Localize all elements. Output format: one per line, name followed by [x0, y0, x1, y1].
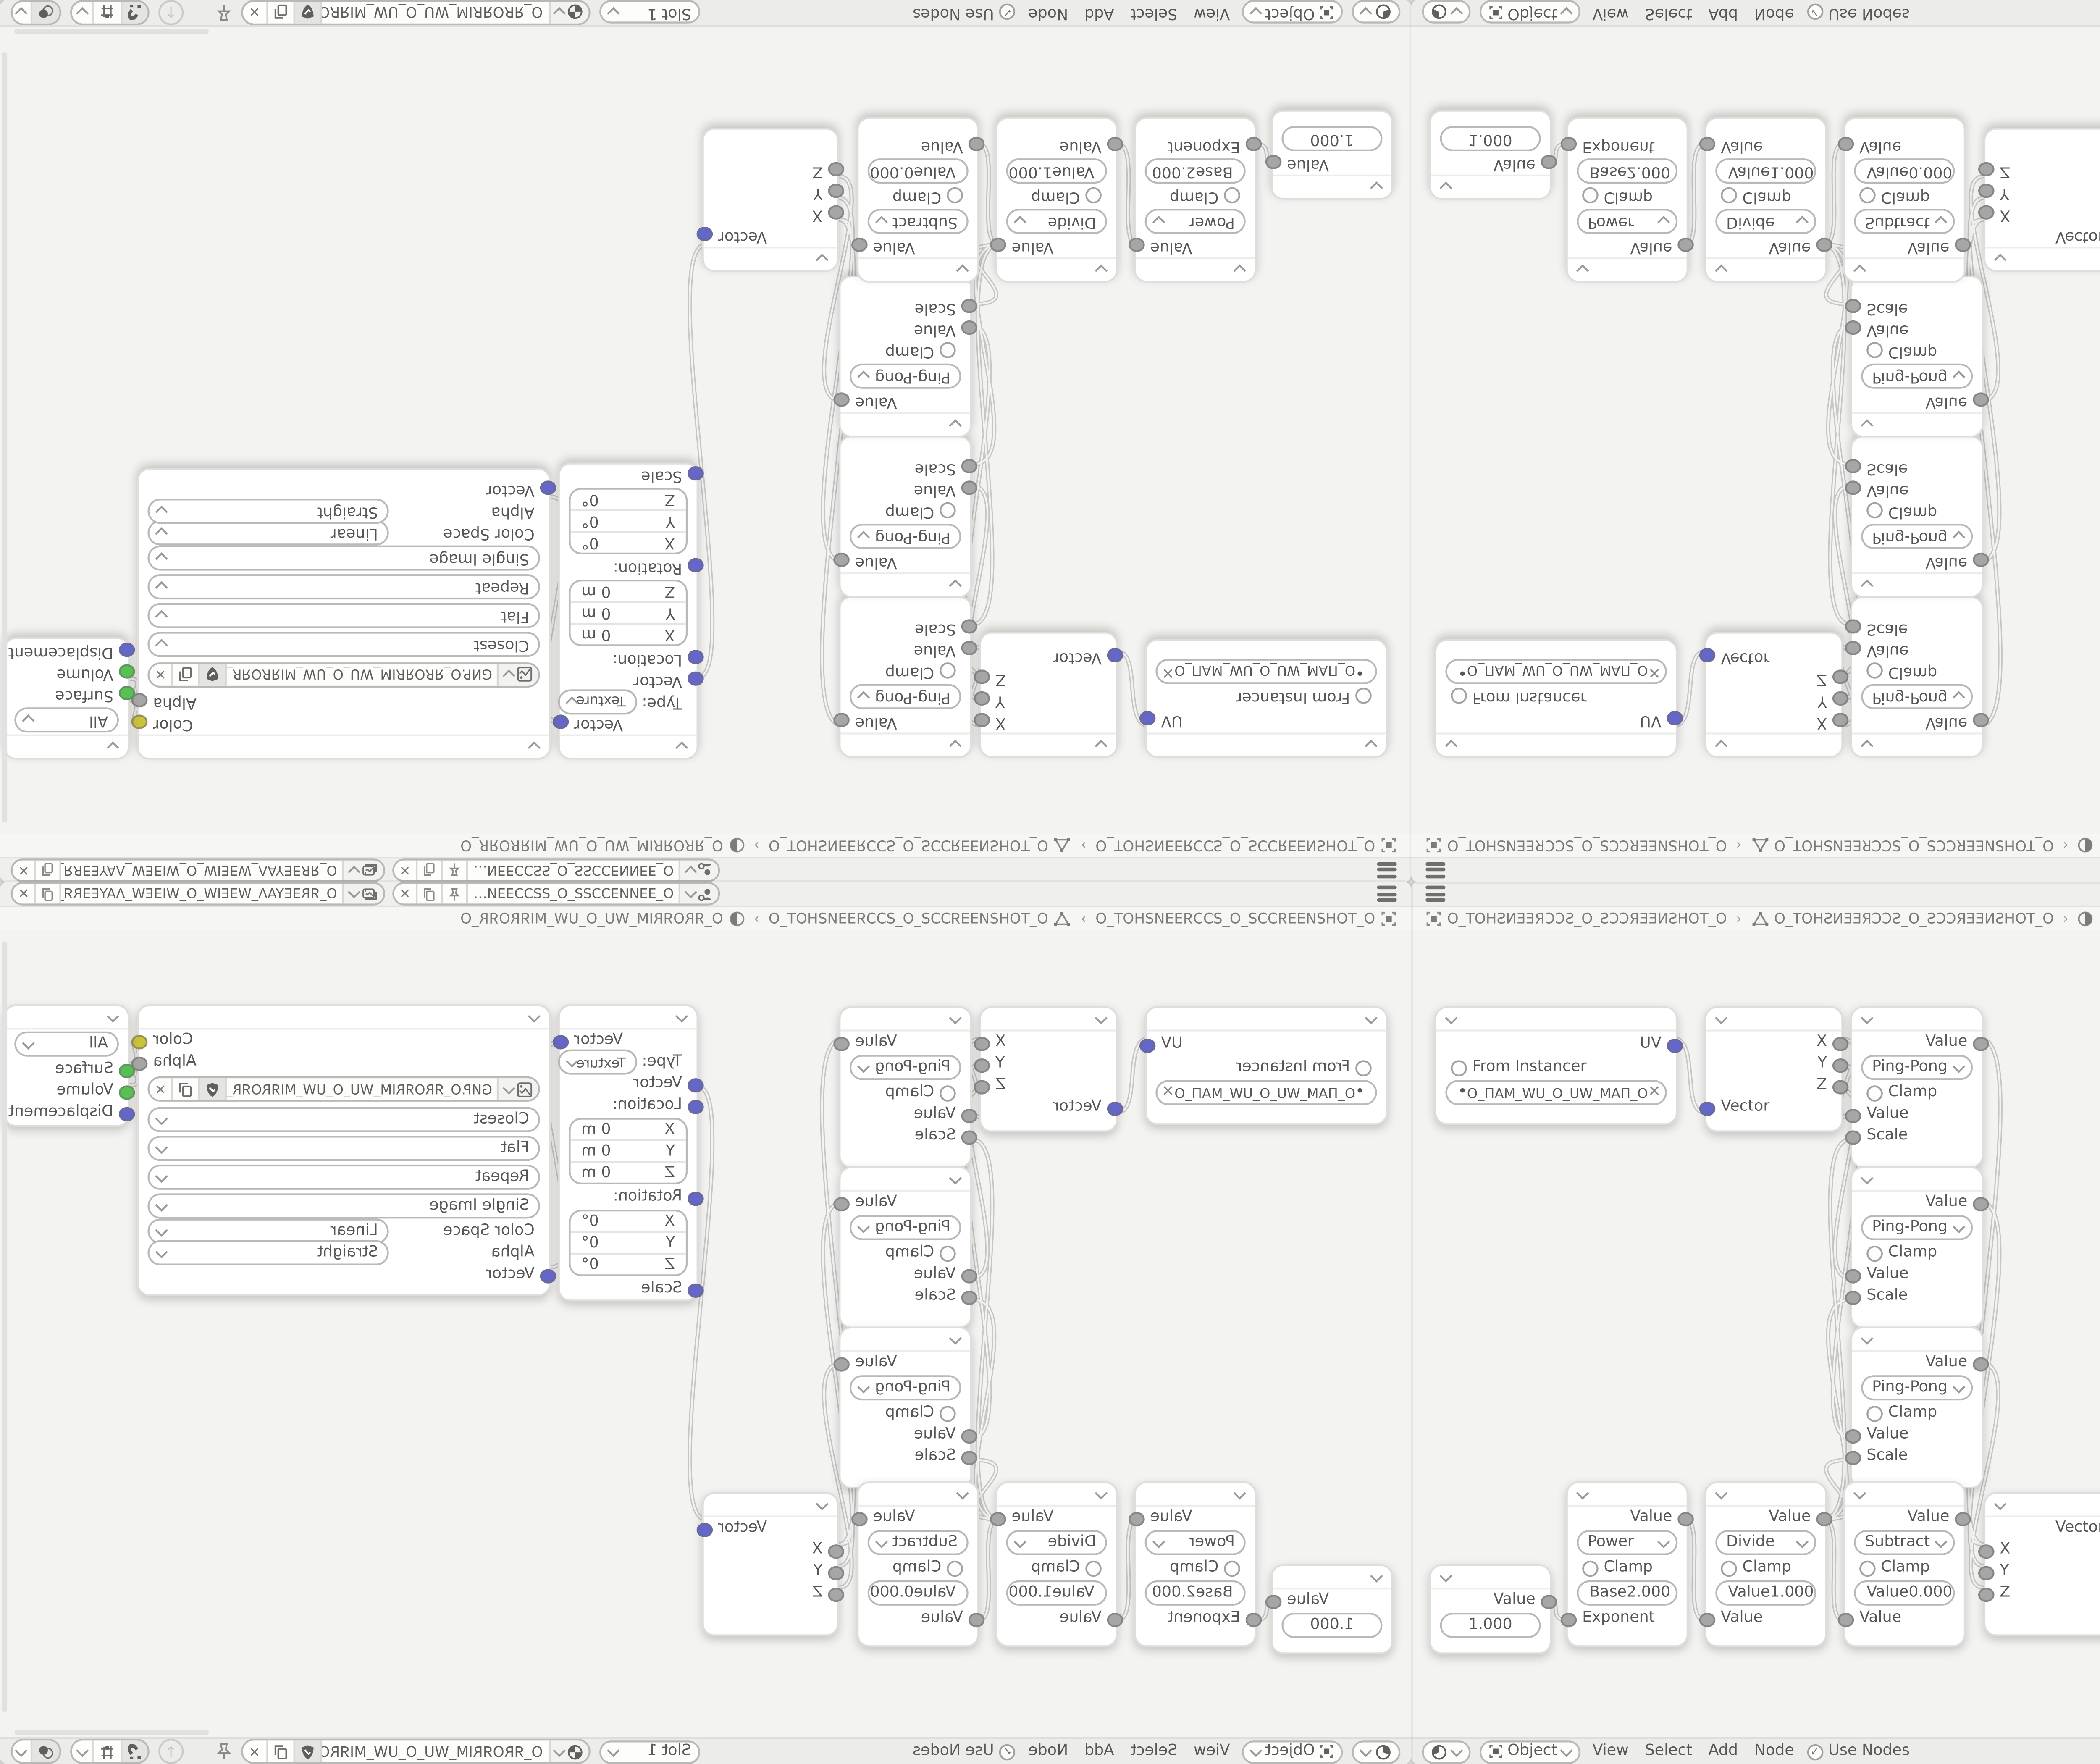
- node-uv-map[interactable]: UV From Instancer • O_ПAM_WU_O_UW_MAП_O …: [1435, 639, 1678, 758]
- node-collapse-button[interactable]: [1273, 1566, 1391, 1590]
- node-collapse-button[interactable]: [1431, 1566, 1550, 1590]
- node-collapse-button[interactable]: [1852, 1328, 1982, 1352]
- divide-value-field[interactable]: Value1.000: [1715, 1580, 1816, 1606]
- editor-type-dropdown[interactable]: [1353, 1740, 1401, 1763]
- overlap-circles-icon[interactable]: [31, 2, 60, 23]
- pin-icon[interactable]: [441, 861, 466, 880]
- copy-icon[interactable]: [416, 884, 441, 903]
- node-collapse-button[interactable]: [1136, 1483, 1255, 1507]
- clamp-checkbox[interactable]: Clamp: [997, 1557, 1116, 1578]
- node-math-power[interactable]: Value Power Clamp Base2.000 Exponent: [1566, 1481, 1688, 1647]
- hamburger-menu-icon[interactable]: [1425, 862, 1445, 879]
- node-mapping[interactable]: Vector Type:Texture Vector Location: X0 …: [558, 1004, 698, 1301]
- node-collapse-button[interactable]: [1436, 732, 1676, 756]
- node-math-divide[interactable]: Value Divide Clamp Value1.000 Value: [995, 1481, 1118, 1647]
- node-combine-xyz[interactable]: Vector X Y Z: [702, 1492, 839, 1636]
- unlink-x-icon[interactable]: ✕: [150, 1078, 172, 1100]
- copy-icon[interactable]: [171, 1078, 198, 1100]
- node-math-subtract[interactable]: Value Subtract Clamp Value0.000 Value: [857, 117, 979, 283]
- node-combine-xyz[interactable]: Vector X Y Z: [1984, 1492, 2100, 1636]
- go-to-parent-icon[interactable]: ↑: [158, 1739, 184, 1764]
- node-math-ping-pong-3[interactable]: Value Ping-Pong Clamp Value Scale: [1851, 276, 1984, 438]
- value-field[interactable]: 1.000: [1440, 126, 1541, 151]
- node-collapse-button[interactable]: [997, 257, 1116, 281]
- node-collapse-button[interactable]: [1273, 175, 1391, 198]
- clamp-checkbox[interactable]: Clamp: [1568, 185, 1687, 207]
- math-operation-dropdown[interactable]: Ping-Pong: [1861, 1215, 1973, 1240]
- math-operation-dropdown[interactable]: Divide: [1715, 1530, 1816, 1555]
- node-collapse-button[interactable]: [1845, 257, 1964, 281]
- node-collapse-button[interactable]: [1436, 1008, 1676, 1032]
- clamp-checkbox[interactable]: Clamp: [1568, 1557, 1687, 1578]
- node-collapse-button[interactable]: [1852, 1168, 1982, 1192]
- location-xyz-fields[interactable]: X0 m Y0 m Z0 m: [569, 580, 688, 646]
- math-operation-dropdown[interactable]: Divide: [1715, 209, 1816, 234]
- uv-map-select-field[interactable]: • O_ПAM_WU_O_UW_MAП_O ✕: [1445, 1080, 1667, 1105]
- node-collapse-button[interactable]: [5, 735, 128, 758]
- node-math-divide[interactable]: Value Divide Clamp Value1.000 Value: [1705, 1481, 1827, 1647]
- node-separate-xyz[interactable]: X Y Z Vector: [1705, 632, 1843, 758]
- node-collapse-button[interactable]: [1706, 732, 1841, 756]
- node-image-texture[interactable]: Color Alpha GИP.O_ЯROЯRIM_WU_O_UW_MIЯROЯ…: [137, 1004, 551, 1296]
- math-operation-dropdown[interactable]: Ping-Pong: [1861, 1055, 1973, 1080]
- use-nodes-checkbox[interactable]: ✓ Use Nodes: [1807, 4, 1910, 22]
- clamp-checkbox[interactable]: Clamp: [1136, 1557, 1255, 1578]
- scene-browse-dropdown[interactable]: [679, 884, 718, 903]
- node-value[interactable]: Value 1.000: [1429, 110, 1551, 199]
- image-browse-dropdown[interactable]: [498, 664, 538, 685]
- value-field[interactable]: 1.000: [1281, 126, 1382, 151]
- unlink-x-icon[interactable]: ✕: [244, 1740, 266, 1762]
- node-combine-xyz[interactable]: Vector X Y Z: [702, 128, 839, 272]
- node-collapse-button[interactable]: [840, 1168, 970, 1192]
- rotation-xyz-fields[interactable]: X0° Y0° Z0°: [569, 1210, 688, 1276]
- editor-type-dropdown[interactable]: [1353, 1, 1401, 24]
- breadcrumb-material[interactable]: O_ЯROЯRIM_WU_O_UW_MIЯROЯR_O: [460, 837, 723, 853]
- math-operation-dropdown[interactable]: Subtract: [1854, 209, 1955, 234]
- from-instancer-checkbox[interactable]: From Instancer: [1436, 686, 1676, 707]
- uv-map-select-field[interactable]: • O_ПAM_WU_O_UW_MAП_O ✕: [1155, 659, 1377, 684]
- node-collapse-button[interactable]: [560, 1006, 697, 1030]
- math-operation-dropdown[interactable]: Subtract: [868, 209, 969, 234]
- image-name-field[interactable]: GИP.O_ЯROЯRIM_WU_O_UW_MIЯROЯR_O.PNG: [226, 664, 498, 685]
- node-separate-xyz[interactable]: X Y Z Vector: [1705, 1006, 1843, 1132]
- source-dropdown[interactable]: Single Image: [147, 1193, 540, 1218]
- node-math-ping-pong-1[interactable]: Value Ping-Pong Clamp Value Scale: [839, 596, 972, 758]
- snap-options-dropdown[interactable]: [73, 1740, 92, 1762]
- node-combine-xyz[interactable]: Vector X Y Z: [1984, 128, 2100, 272]
- fake-user-shield-icon[interactable]: [199, 1078, 226, 1100]
- node-material-output[interactable]: All Surface Volume Displacement: [4, 637, 130, 759]
- node-editor-tile-top-right: O_ƎƎИИƎƆƆƧƧ_O_ƧƧƆƆƎƎИ… ✕ O_ЯRƎEYAΛ_WƎEIW…: [1411, 0, 2100, 882]
- shader-mode-dropdown[interactable]: Object: [1479, 1, 1580, 24]
- scene-browse-dropdown[interactable]: [679, 861, 718, 880]
- node-collapse-button[interactable]: [840, 1328, 970, 1352]
- node-math-ping-pong-1[interactable]: Value Ping-Pong Clamp Value Scale: [1851, 1006, 1984, 1168]
- node-image-texture[interactable]: Color Alpha GИP.O_ЯROЯRIM_WU_O_UW_MIЯROЯ…: [137, 468, 551, 759]
- clamp-checkbox[interactable]: Clamp: [1852, 1242, 1982, 1263]
- divide-value-field[interactable]: Value1.000: [1006, 158, 1107, 184]
- material-slot-dropdown[interactable]: Slot 1: [599, 1, 700, 24]
- subtract-value-field[interactable]: Value0.000: [1854, 158, 1955, 184]
- alpha-mode-dropdown[interactable]: Straight: [147, 1240, 388, 1265]
- clamp-checkbox[interactable]: Clamp: [1845, 1557, 1964, 1578]
- clamp-checkbox[interactable]: Clamp: [997, 185, 1116, 207]
- pin-icon[interactable]: [441, 884, 466, 903]
- node-material-output[interactable]: All Surface Volume Displacement: [4, 1004, 130, 1126]
- interpolation-dropdown[interactable]: Closest: [147, 1107, 540, 1132]
- node-collapse-button[interactable]: [840, 732, 970, 756]
- node-math-subtract[interactable]: Value Subtract Clamp Value0.000 Value: [1843, 117, 1966, 283]
- node-math-ping-pong-3[interactable]: Value Ping-Pong Clamp Value Scale: [839, 276, 972, 438]
- alpha-mode-dropdown[interactable]: Straight: [147, 499, 388, 524]
- subtract-value-field[interactable]: Value0.000: [1854, 1580, 1955, 1606]
- unlink-x-icon[interactable]: ✕: [394, 884, 416, 903]
- base-value-field[interactable]: Base2.000: [1577, 1580, 1677, 1606]
- menu-view[interactable]: View: [1190, 4, 1234, 22]
- clamp-checkbox[interactable]: Clamp: [840, 661, 970, 682]
- math-operation-dropdown[interactable]: Ping-Pong: [1861, 684, 1973, 709]
- math-operation-dropdown[interactable]: Ping-Pong: [1861, 524, 1973, 549]
- overlap-options-dropdown[interactable]: [13, 2, 31, 23]
- horizontal-scrollbar[interactable]: [14, 1730, 209, 1735]
- shader-mode-dropdown[interactable]: Object: [1242, 1, 1344, 24]
- node-math-ping-pong-2[interactable]: Value Ping-Pong Clamp Value Scale: [839, 436, 972, 598]
- from-instancer-checkbox[interactable]: From Instancer: [1147, 686, 1386, 707]
- node-collapse-button[interactable]: [858, 1483, 977, 1507]
- math-operation-dropdown[interactable]: Subtract: [1854, 1530, 1955, 1555]
- node-math-ping-pong-2[interactable]: Value Ping-Pong Clamp Value Scale: [839, 1166, 972, 1328]
- extension-dropdown[interactable]: Repeat: [147, 574, 540, 599]
- node-uv-map[interactable]: UV From Instancer • O_ПAM_WU_O_UW_MAП_O …: [1145, 1006, 1388, 1125]
- breadcrumb-material[interactable]: O_ЯROЯRIM_WU_O_UW_MIЯROЯR_O: [460, 911, 723, 927]
- math-operation-dropdown[interactable]: Ping-Pong: [850, 1375, 961, 1400]
- node-collapse-button[interactable]: [5, 1006, 128, 1030]
- node-collapse-button[interactable]: [981, 1008, 1116, 1032]
- chevron-down-icon: [1716, 1486, 1727, 1498]
- node-collapse-button[interactable]: [1852, 732, 1982, 756]
- copy-icon[interactable]: [171, 664, 198, 685]
- clamp-checkbox[interactable]: Clamp: [1852, 661, 1982, 682]
- node-collapse-button[interactable]: [1852, 1008, 1982, 1032]
- use-nodes-checkbox[interactable]: ✓ Use Nodes: [913, 1743, 1016, 1761]
- divide-value-field[interactable]: Value1.000: [1715, 158, 1816, 184]
- view-layer-browse-dropdown[interactable]: [343, 861, 383, 880]
- node-collapse-button[interactable]: [1985, 1494, 2100, 1517]
- node-value[interactable]: Value 1.000: [1271, 110, 1393, 199]
- node-collapse-button[interactable]: [139, 735, 549, 758]
- vertical-scrollbar[interactable]: [2, 52, 7, 822]
- node-collapse-button[interactable]: [704, 247, 837, 270]
- node-math-power[interactable]: Value Power Clamp Base2.000 Exponent: [1134, 1481, 1256, 1647]
- uv-map-select-field[interactable]: • O_ПAM_WU_O_UW_MAП_O ✕: [1445, 659, 1667, 684]
- chevron-down-icon: [554, 1744, 565, 1755]
- breadcrumb-mesh[interactable]: O_TOHƧИƎƎЯƆƆƧ_O_ƧƆƆЯƎƎИƧHOT_O: [1774, 911, 2054, 927]
- node-collapse-button[interactable]: [1568, 257, 1687, 281]
- math-operation-dropdown[interactable]: Divide: [1006, 1530, 1107, 1555]
- menu-select[interactable]: Select: [1126, 4, 1181, 22]
- node-collapse-button[interactable]: [858, 257, 977, 281]
- clear-x-icon[interactable]: ✕: [1162, 1084, 1175, 1102]
- subtract-value-field[interactable]: Value0.000: [868, 158, 969, 184]
- snap-magnet-icon[interactable]: [121, 2, 147, 23]
- chevron-down-icon: [1577, 1486, 1588, 1498]
- chevron-down-icon: [1995, 255, 2006, 267]
- breadcrumb-object[interactable]: O_TOHƧИƎƎЯƆƆƧ_O_ƧƆƆЯƎƎИƧHOT_O: [1095, 837, 1375, 853]
- node-uv-map[interactable]: UV From Instancer • O_ПAM_WU_O_UW_MAП_O …: [1435, 1006, 1678, 1125]
- clamp-checkbox[interactable]: Clamp: [840, 340, 970, 362]
- object-icon: [1320, 5, 1335, 20]
- image-browse-dropdown[interactable]: [498, 1078, 538, 1100]
- node-collapse-button[interactable]: [1136, 257, 1255, 281]
- math-operation-dropdown[interactable]: Ping-Pong: [850, 524, 961, 549]
- menu-add[interactable]: Add: [1705, 1743, 1742, 1761]
- clamp-checkbox[interactable]: Clamp: [1852, 340, 1982, 362]
- extension-dropdown[interactable]: Repeat: [147, 1165, 540, 1190]
- math-operation-dropdown[interactable]: Power: [1577, 209, 1677, 234]
- node-collapse-button[interactable]: [840, 412, 970, 436]
- math-operation-dropdown[interactable]: Ping-Pong: [850, 1215, 961, 1240]
- node-math-divide[interactable]: Value Divide Clamp Value1.000 Value: [995, 117, 1118, 283]
- menu-add[interactable]: Add: [1081, 1743, 1118, 1761]
- clear-x-icon[interactable]: ✕: [1648, 1084, 1661, 1102]
- math-operation-dropdown[interactable]: Subtract: [868, 1530, 969, 1555]
- node-collapse-button[interactable]: [1147, 1008, 1386, 1032]
- menu-add[interactable]: Add: [1705, 4, 1742, 22]
- view-layer-name-field[interactable]: O_ЯRƎEYAΛ_WƎEIW_O_WIƎEW_ΛAYEƎRЯ_O: [60, 884, 343, 903]
- node-separate-xyz[interactable]: X Y Z Vector: [979, 632, 1118, 758]
- node-uv-map[interactable]: UV From Instancer • O_ПAM_WU_O_UW_MAП_O …: [1145, 639, 1388, 758]
- view-layer-browse-dropdown[interactable]: [343, 884, 383, 903]
- use-nodes-checkbox[interactable]: ✓ Use Nodes: [913, 4, 1016, 22]
- math-operation-dropdown[interactable]: Power: [1145, 209, 1246, 234]
- material-browse-dropdown[interactable]: [548, 1740, 588, 1762]
- snap-magnet-icon[interactable]: [121, 1740, 147, 1762]
- breadcrumb-object[interactable]: O_TOHƧИƎƎЯƆƆƧ_O_ƧƆƆЯƎƎИƧHOT_O: [1447, 911, 1727, 927]
- rotation-xyz-fields[interactable]: X0° Y0° Z0°: [569, 488, 688, 554]
- clamp-checkbox[interactable]: Clamp: [840, 1242, 970, 1263]
- node-canvas[interactable]: UV From Instancer • O_ПAM_WU_O_UW_MAП_O …: [0, 931, 1411, 1737]
- node-collapse-button[interactable]: [1147, 732, 1386, 756]
- from-instancer-checkbox[interactable]: From Instancer: [1436, 1057, 1676, 1078]
- node-collapse-button[interactable]: [1706, 257, 1825, 281]
- scene-name-field[interactable]: O_ƎƎИИƎƆƆƧƧ_O_ƧƧƆƆƎƎИ…: [466, 861, 679, 880]
- editor-type-dropdown[interactable]: [1422, 1, 1470, 24]
- hamburger-menu-icon[interactable]: [1425, 886, 1445, 902]
- fake-user-shield-icon[interactable]: [199, 664, 226, 685]
- node-canvas[interactable]: UV From Instancer • O_ПAM_WU_O_UW_MAП_O …: [0, 27, 1411, 833]
- menu-node[interactable]: Node: [1025, 1743, 1072, 1761]
- node-math-power[interactable]: Value Power Clamp Base2.000 Exponent: [1134, 117, 1256, 283]
- use-nodes-checkbox[interactable]: ✓ Use Nodes: [1807, 1743, 1910, 1761]
- projection-dropdown[interactable]: Flat: [147, 1136, 540, 1161]
- clamp-checkbox[interactable]: Clamp: [840, 1082, 970, 1103]
- base-value-field[interactable]: Base2.000: [1577, 158, 1677, 184]
- pin-icon[interactable]: [216, 1743, 233, 1761]
- node-math-ping-pong-3[interactable]: Value Ping-Pong Clamp Value Scale: [1851, 1327, 1984, 1489]
- menu-select[interactable]: Select: [1126, 1743, 1181, 1761]
- node-collapse-button[interactable]: [1568, 1483, 1687, 1507]
- clamp-checkbox[interactable]: Clamp: [858, 1557, 977, 1578]
- uv-map-select-field[interactable]: • O_ПAM_WU_O_UW_MAП_O ✕: [1155, 1080, 1377, 1105]
- copy-icon[interactable]: [35, 884, 60, 903]
- material-browse-dropdown[interactable]: [548, 2, 588, 23]
- menu-node[interactable]: Node: [1751, 4, 1798, 22]
- math-operation-dropdown[interactable]: Ping-Pong: [1861, 1375, 1973, 1400]
- clamp-checkbox[interactable]: Clamp: [858, 185, 977, 207]
- math-operation-dropdown[interactable]: Ping-Pong: [1861, 364, 1973, 389]
- view-layer-name-field[interactable]: O_ЯRƎEYAΛ_WƎEIW_O_WIƎEW_ΛAYEƎRЯ_O: [60, 861, 343, 880]
- unlink-x-icon[interactable]: ✕: [244, 2, 266, 23]
- clamp-checkbox[interactable]: Clamp: [840, 1402, 970, 1424]
- node-collapse-button[interactable]: [1852, 572, 1982, 596]
- source-dropdown[interactable]: Single Image: [147, 546, 540, 571]
- menu-node[interactable]: Node: [1751, 1743, 1798, 1761]
- node-canvas[interactable]: UV From Instancer • O_ПAM_WU_O_UW_MAП_O …: [1411, 931, 2100, 1737]
- material-slot-dropdown[interactable]: Slot 1: [599, 1740, 700, 1763]
- breadcrumb-mesh[interactable]: O_TOHƧИƎƎЯƆƆƧ_O_ƧƆƆЯƎƎИƧHOT_O: [769, 837, 1048, 853]
- node-collapse-button[interactable]: [1852, 412, 1982, 436]
- shader-mode-dropdown[interactable]: Object: [1479, 1740, 1580, 1763]
- hamburger-menu-icon[interactable]: [1377, 886, 1397, 902]
- node-mapping[interactable]: Vector Type:Texture Vector Location: X0 …: [558, 462, 698, 759]
- math-operation-dropdown[interactable]: Ping-Pong: [850, 1055, 961, 1080]
- snap-target-icon[interactable]: [92, 1740, 121, 1762]
- interpolation-dropdown[interactable]: Closest: [147, 632, 540, 657]
- node-collapse-button[interactable]: [840, 1008, 970, 1032]
- snap-target-icon[interactable]: [92, 2, 121, 23]
- menu-select[interactable]: Select: [1641, 4, 1696, 22]
- overlap-circles-icon[interactable]: [31, 1740, 60, 1762]
- pin-icon[interactable]: [216, 4, 233, 22]
- clear-x-icon[interactable]: ✕: [1162, 662, 1175, 680]
- go-to-parent-icon[interactable]: ↑: [158, 0, 184, 25]
- node-math-ping-pong-2[interactable]: Value Ping-Pong Clamp Value Scale: [1851, 436, 1984, 598]
- material-name-field[interactable]: O_ЯROЯRIM_WU_O_UW_MIЯROЯR_O: [320, 2, 548, 23]
- color-space-dropdown[interactable]: Linear: [147, 520, 388, 546]
- from-instancer-checkbox[interactable]: From Instancer: [1147, 1057, 1386, 1078]
- node-math-ping-pong-1[interactable]: Value Ping-Pong Clamp Value Scale: [839, 1006, 972, 1168]
- copy-icon[interactable]: [35, 861, 60, 880]
- node-separate-xyz[interactable]: X Y Z Vector: [979, 1006, 1118, 1132]
- node-canvas[interactable]: UV From Instancer • O_ПAM_WU_O_UW_MAП_O …: [1411, 27, 2100, 833]
- menu-add[interactable]: Add: [1081, 4, 1118, 22]
- material-name-field[interactable]: O_ЯROЯRIM_WU_O_UW_MIЯROЯR_O: [320, 1740, 548, 1762]
- horizontal-scrollbar[interactable]: [14, 29, 209, 34]
- node-collapse-button[interactable]: [704, 1494, 837, 1517]
- divide-value-field[interactable]: Value1.000: [1006, 1580, 1107, 1606]
- output-target-dropdown[interactable]: All: [14, 1032, 119, 1057]
- clamp-checkbox[interactable]: Clamp: [1706, 185, 1825, 207]
- overlap-options-dropdown[interactable]: [13, 1740, 31, 1762]
- node-collapse-button[interactable]: [1845, 1483, 1964, 1507]
- base-value-field[interactable]: Base2.000: [1145, 158, 1246, 184]
- breadcrumb-mesh[interactable]: O_TOHƧИƎƎЯƆƆƧ_O_ƧƆƆЯƎƎИƧHOT_O: [769, 911, 1048, 927]
- fake-user-shield-icon[interactable]: [293, 2, 320, 23]
- subtract-value-field[interactable]: Value0.000: [868, 1580, 969, 1606]
- node-collapse-button[interactable]: [1431, 175, 1550, 198]
- checkbox-icon: [940, 503, 956, 520]
- node-value[interactable]: Value 1.000: [1429, 1564, 1551, 1654]
- copy-icon[interactable]: [265, 1740, 292, 1762]
- node-collapse-button[interactable]: [1706, 1008, 1841, 1032]
- node-value[interactable]: Value 1.000: [1271, 1564, 1393, 1654]
- menu-node[interactable]: Node: [1025, 4, 1072, 22]
- clamp-checkbox[interactable]: Clamp: [1845, 185, 1964, 207]
- node-math-divide[interactable]: Value Divide Clamp Value1.000 Value: [1705, 117, 1827, 283]
- clamp-checkbox[interactable]: Clamp: [1136, 185, 1255, 207]
- projection-dropdown[interactable]: Flat: [147, 603, 540, 628]
- clamp-checkbox[interactable]: Clamp: [1852, 1082, 1982, 1103]
- snap-options-dropdown[interactable]: [73, 2, 92, 23]
- clamp-checkbox[interactable]: Clamp: [1852, 1402, 1982, 1424]
- location-xyz-fields[interactable]: X0 m Y0 m Z0 m: [569, 1118, 688, 1184]
- node-math-subtract[interactable]: Value Subtract Clamp Value0.000 Value: [857, 1481, 979, 1647]
- unlink-x-icon[interactable]: ✕: [150, 664, 172, 685]
- node-collapse-button[interactable]: [840, 572, 970, 596]
- unlink-x-icon[interactable]: ✕: [13, 884, 35, 903]
- breadcrumb-mesh[interactable]: O_TOHƧИƎƎЯƆƆƧ_O_ƧƆƆЯƎƎИƧHOT_O: [1774, 837, 2054, 853]
- clamp-checkbox[interactable]: Clamp: [1852, 500, 1982, 522]
- menu-view[interactable]: View: [1589, 4, 1633, 22]
- unlink-x-icon[interactable]: ✕: [394, 861, 416, 880]
- unlink-x-icon[interactable]: ✕: [13, 861, 35, 880]
- node-collapse-button[interactable]: [997, 1483, 1116, 1507]
- copy-icon[interactable]: [416, 861, 441, 880]
- shader-mode-dropdown[interactable]: Object: [1242, 1740, 1344, 1763]
- node-math-power[interactable]: Value Power Clamp Base2.000 Exponent: [1566, 117, 1688, 283]
- editor-type-dropdown[interactable]: [1422, 1740, 1470, 1763]
- math-operation-dropdown[interactable]: Ping-Pong: [850, 364, 961, 389]
- menu-view[interactable]: View: [1589, 1743, 1633, 1761]
- mapping-type-dropdown[interactable]: Texture: [557, 1050, 636, 1075]
- breadcrumb-object[interactable]: O_TOHƧИƎƎЯƆƆƧ_O_ƧƆƆЯƎƎИƧHOT_O: [1447, 837, 1727, 853]
- scene-name-field[interactable]: O_ƎƎИИƎƆƆƧƧ_O_ƧƧƆƆƎƎИ…: [466, 884, 679, 903]
- math-operation-dropdown[interactable]: Ping-Pong: [850, 684, 961, 709]
- node-editor-header: Object View Select Add Node ✓ Use Nodes …: [0, 1737, 1411, 1764]
- math-operation-dropdown[interactable]: Divide: [1006, 209, 1107, 234]
- node-collapse-button[interactable]: [560, 735, 697, 758]
- node-math-ping-pong-3[interactable]: Value Ping-Pong Clamp Value Scale: [839, 1327, 972, 1489]
- hamburger-menu-icon[interactable]: [1377, 862, 1397, 879]
- node-collapse-button[interactable]: [139, 1006, 549, 1030]
- node-collapse-button[interactable]: [981, 732, 1116, 756]
- image-name-field[interactable]: GИP.O_ЯROЯRIM_WU_O_UW_MIЯROЯR_O.PNG: [226, 1078, 498, 1100]
- copy-icon[interactable]: [265, 2, 292, 23]
- breadcrumb-object[interactable]: O_TOHƧИƎƎЯƆƆƧ_O_ƧƆƆЯƎƎИƧHOT_O: [1095, 911, 1375, 927]
- value-field[interactable]: 1.000: [1440, 1613, 1541, 1638]
- fake-user-shield-icon[interactable]: [293, 1740, 320, 1762]
- menu-view[interactable]: View: [1190, 1743, 1234, 1761]
- mapping-type-dropdown[interactable]: Texture: [557, 689, 636, 714]
- value-field[interactable]: 1.000: [1281, 1613, 1382, 1638]
- vertical-scrollbar[interactable]: [2, 941, 7, 1711]
- clear-x-icon[interactable]: ✕: [1648, 662, 1661, 680]
- math-operation-dropdown[interactable]: Power: [1577, 1530, 1677, 1555]
- menu-select[interactable]: Select: [1641, 1743, 1696, 1761]
- node-collapse-button[interactable]: [1985, 247, 2100, 270]
- clamp-checkbox[interactable]: Clamp: [840, 500, 970, 522]
- node-math-subtract[interactable]: Value Subtract Clamp Value0.000 Value: [1843, 1481, 1966, 1647]
- node-collapse-button[interactable]: [1706, 1483, 1825, 1507]
- clamp-checkbox[interactable]: Clamp: [1706, 1557, 1825, 1578]
- chevron-down-icon: [157, 1198, 168, 1210]
- node-math-ping-pong-2[interactable]: Value Ping-Pong Clamp Value Scale: [1851, 1166, 1984, 1328]
- node-math-ping-pong-1[interactable]: Value Ping-Pong Clamp Value Scale: [1851, 596, 1984, 758]
- output-target-dropdown[interactable]: All: [14, 707, 119, 732]
- math-operation-dropdown[interactable]: Power: [1145, 1530, 1246, 1555]
- base-value-field[interactable]: Base2.000: [1145, 1580, 1246, 1606]
